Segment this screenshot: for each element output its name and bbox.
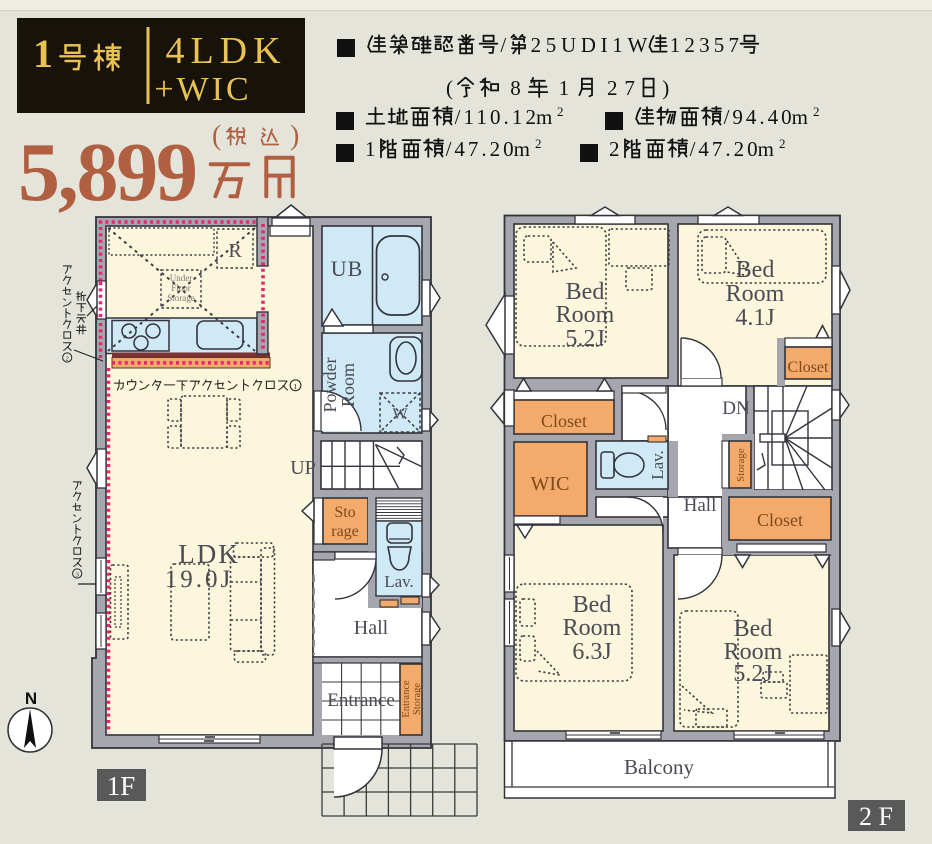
- svg-text:Closet: Closet: [757, 510, 803, 530]
- svg-text:m: m: [514, 137, 530, 161]
- svg-text:Closet: Closet: [541, 411, 587, 431]
- svg-text:5.2J: 5.2J: [733, 661, 772, 687]
- svg-text:3: 3: [76, 572, 79, 579]
- svg-text:2: 2: [535, 136, 542, 151]
- svg-text:WIC: WIC: [531, 473, 570, 495]
- svg-text:Lav.: Lav.: [384, 572, 414, 591]
- svg-text:5,899: 5,899: [18, 126, 198, 219]
- svg-text:W: W: [392, 406, 408, 423]
- svg-text:2: 2: [66, 356, 69, 363]
- svg-text:2: 2: [779, 136, 786, 151]
- svg-text:Floor: Floor: [171, 283, 191, 293]
- svg-text:R: R: [228, 240, 242, 262]
- svg-text:Storage: Storage: [735, 448, 747, 482]
- svg-text:1F: 1F: [107, 771, 136, 801]
- svg-text:2: 2: [813, 104, 820, 119]
- svg-text:m: m: [792, 105, 808, 129]
- svg-text:2: 2: [609, 137, 620, 161]
- svg-text:Balcony: Balcony: [624, 755, 694, 779]
- svg-text:2: 2: [607, 76, 618, 100]
- svg-text:(: (: [212, 121, 221, 152]
- svg-text:Powder: Powder: [320, 358, 340, 413]
- svg-text:Hall: Hall: [684, 495, 717, 516]
- svg-text:Entrance: Entrance: [401, 680, 412, 718]
- svg-text:2: 2: [557, 104, 564, 119]
- svg-text:1: 1: [559, 76, 570, 100]
- svg-text:Room: Room: [563, 615, 622, 641]
- svg-text:Lav.: Lav.: [648, 450, 667, 480]
- svg-text:Room: Room: [556, 302, 615, 328]
- svg-text:N: N: [25, 689, 37, 708]
- svg-text:Storage: Storage: [167, 293, 195, 303]
- svg-text:/: /: [500, 33, 506, 57]
- svg-text:m: m: [536, 105, 552, 129]
- svg-text:Under: Under: [170, 273, 193, 283]
- svg-text:Storage: Storage: [412, 683, 423, 715]
- svg-text:4LDK: 4LDK: [165, 30, 286, 72]
- svg-text:m: m: [758, 137, 774, 161]
- svg-text:6.3J: 6.3J: [572, 639, 611, 665]
- svg-text:Entrance: Entrance: [327, 690, 395, 711]
- svg-text:2 F: 2 F: [859, 802, 893, 831]
- svg-text:LDK: LDK: [178, 539, 240, 569]
- svg-text:/110.12: /110.12: [455, 105, 536, 129]
- svg-text:25UDI1W: 25UDI1W: [531, 33, 648, 57]
- svg-text:/47.20: /47.20: [690, 137, 758, 161]
- svg-text:(: (: [446, 76, 453, 100]
- svg-text:+WIC: +WIC: [154, 71, 251, 108]
- svg-text:Room: Room: [726, 281, 785, 307]
- svg-text:12357: 12357: [670, 33, 739, 57]
- svg-text:/94.40: /94.40: [724, 105, 792, 129]
- svg-text:UP: UP: [290, 457, 316, 479]
- svg-text:/47.20: /47.20: [446, 137, 514, 161]
- svg-text:UB: UB: [331, 256, 364, 281]
- svg-text:1: 1: [294, 382, 298, 391]
- svg-text:Hall: Hall: [354, 617, 389, 639]
- svg-text:8: 8: [510, 76, 521, 100]
- svg-text:): ): [662, 76, 669, 100]
- svg-text:Closet: Closet: [788, 359, 829, 376]
- svg-text:19.0J: 19.0J: [165, 566, 233, 593]
- svg-text:7: 7: [624, 76, 635, 100]
- svg-text:rage: rage: [331, 523, 359, 540]
- svg-text:4.1J: 4.1J: [735, 305, 774, 331]
- svg-text:Sto: Sto: [334, 504, 355, 521]
- svg-text:Bed: Bed: [736, 257, 775, 283]
- svg-text:Room: Room: [338, 363, 358, 407]
- svg-text:DN: DN: [722, 398, 750, 419]
- svg-text:): ): [290, 121, 299, 152]
- svg-text:1: 1: [33, 31, 53, 76]
- svg-text:5.2J: 5.2J: [565, 326, 604, 352]
- svg-text:1: 1: [365, 137, 376, 161]
